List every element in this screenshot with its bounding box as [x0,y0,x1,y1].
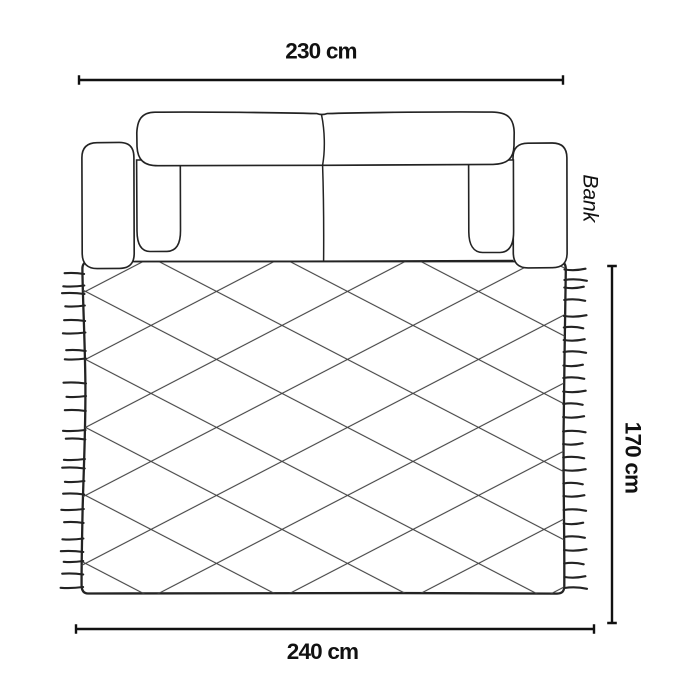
svg-text:170 cm: 170 cm [621,422,646,494]
svg-text:240 cm: 240 cm [287,639,359,664]
svg-text:Bank: Bank [579,174,602,223]
svg-text:230 cm: 230 cm [285,39,357,64]
